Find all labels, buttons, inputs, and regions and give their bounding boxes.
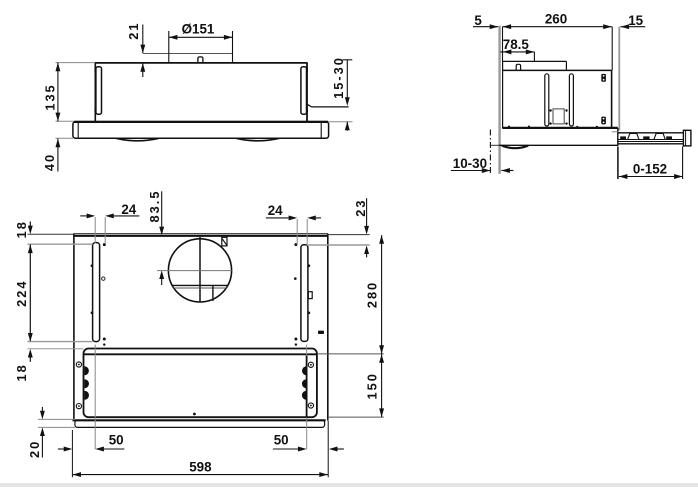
svg-text:40: 40 <box>42 153 57 171</box>
svg-text:135: 135 <box>43 83 58 110</box>
svg-text:21: 21 <box>126 21 141 39</box>
svg-text:20: 20 <box>27 440 42 458</box>
svg-text:0-152: 0-152 <box>633 162 667 177</box>
svg-text:15: 15 <box>628 13 643 28</box>
svg-text:Ø151: Ø151 <box>182 22 215 37</box>
svg-text:598: 598 <box>189 459 212 474</box>
svg-text:78.5: 78.5 <box>503 37 530 52</box>
svg-text:5: 5 <box>474 13 482 28</box>
svg-text:224: 224 <box>14 280 29 307</box>
svg-text:280: 280 <box>365 281 380 308</box>
svg-text:50: 50 <box>274 433 289 448</box>
svg-text:18: 18 <box>14 363 29 381</box>
svg-text:18: 18 <box>14 220 29 238</box>
svg-text:15-30: 15-30 <box>331 56 346 99</box>
svg-text:23: 23 <box>353 198 368 216</box>
svg-text:10-30: 10-30 <box>453 156 487 171</box>
svg-text:260: 260 <box>545 12 567 27</box>
svg-text:50: 50 <box>109 433 124 448</box>
svg-text:83.5: 83.5 <box>147 190 162 223</box>
svg-text:150: 150 <box>365 372 380 399</box>
svg-text:24: 24 <box>268 203 283 218</box>
svg-text:24: 24 <box>121 202 136 217</box>
